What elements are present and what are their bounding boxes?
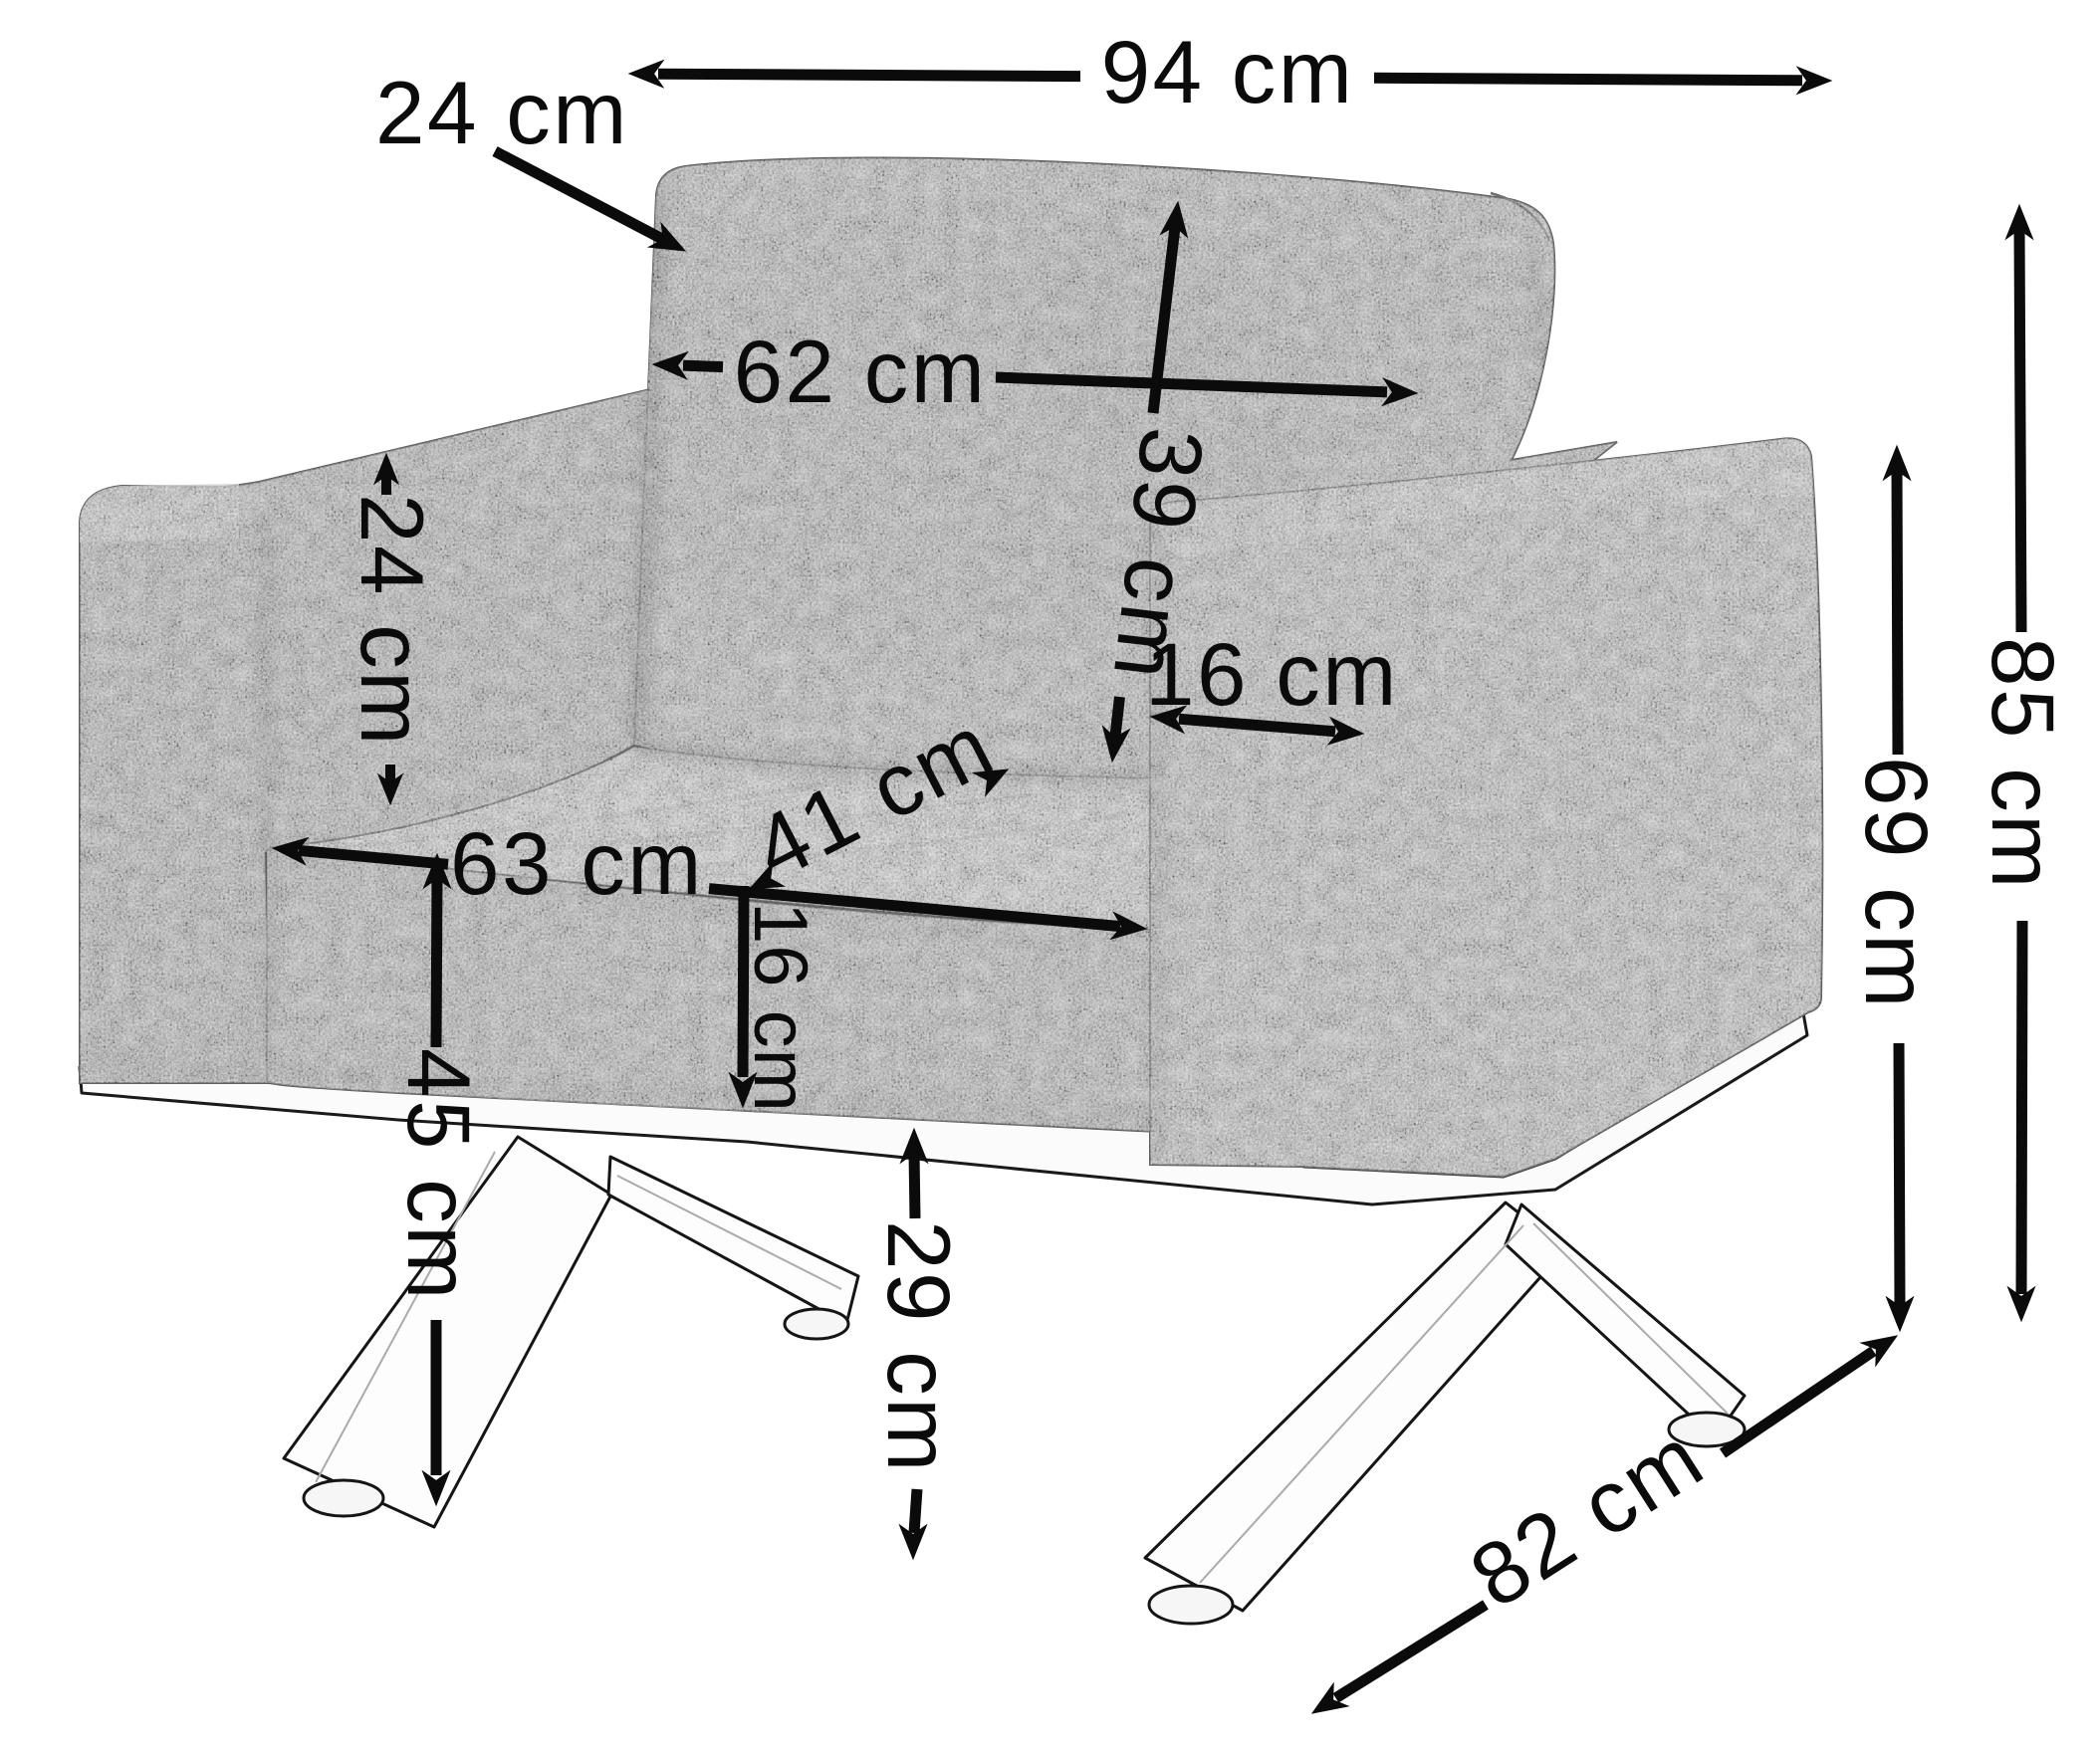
svg-text:16 cm: 16 cm bbox=[738, 902, 822, 1113]
svg-text:45 cm: 45 cm bbox=[389, 1048, 489, 1302]
svg-text:24 cm: 24 cm bbox=[375, 63, 629, 162]
svg-text:94 cm: 94 cm bbox=[1101, 22, 1355, 121]
svg-text:62 cm: 62 cm bbox=[734, 322, 988, 421]
svg-text:85 cm: 85 cm bbox=[1974, 637, 2073, 891]
svg-text:69 cm: 69 cm bbox=[1847, 757, 1947, 1010]
svg-text:24 cm: 24 cm bbox=[343, 494, 442, 748]
svg-text:63 cm: 63 cm bbox=[450, 813, 704, 913]
svg-text:16 cm: 16 cm bbox=[1145, 624, 1399, 724]
svg-text:29 cm: 29 cm bbox=[869, 1220, 969, 1474]
